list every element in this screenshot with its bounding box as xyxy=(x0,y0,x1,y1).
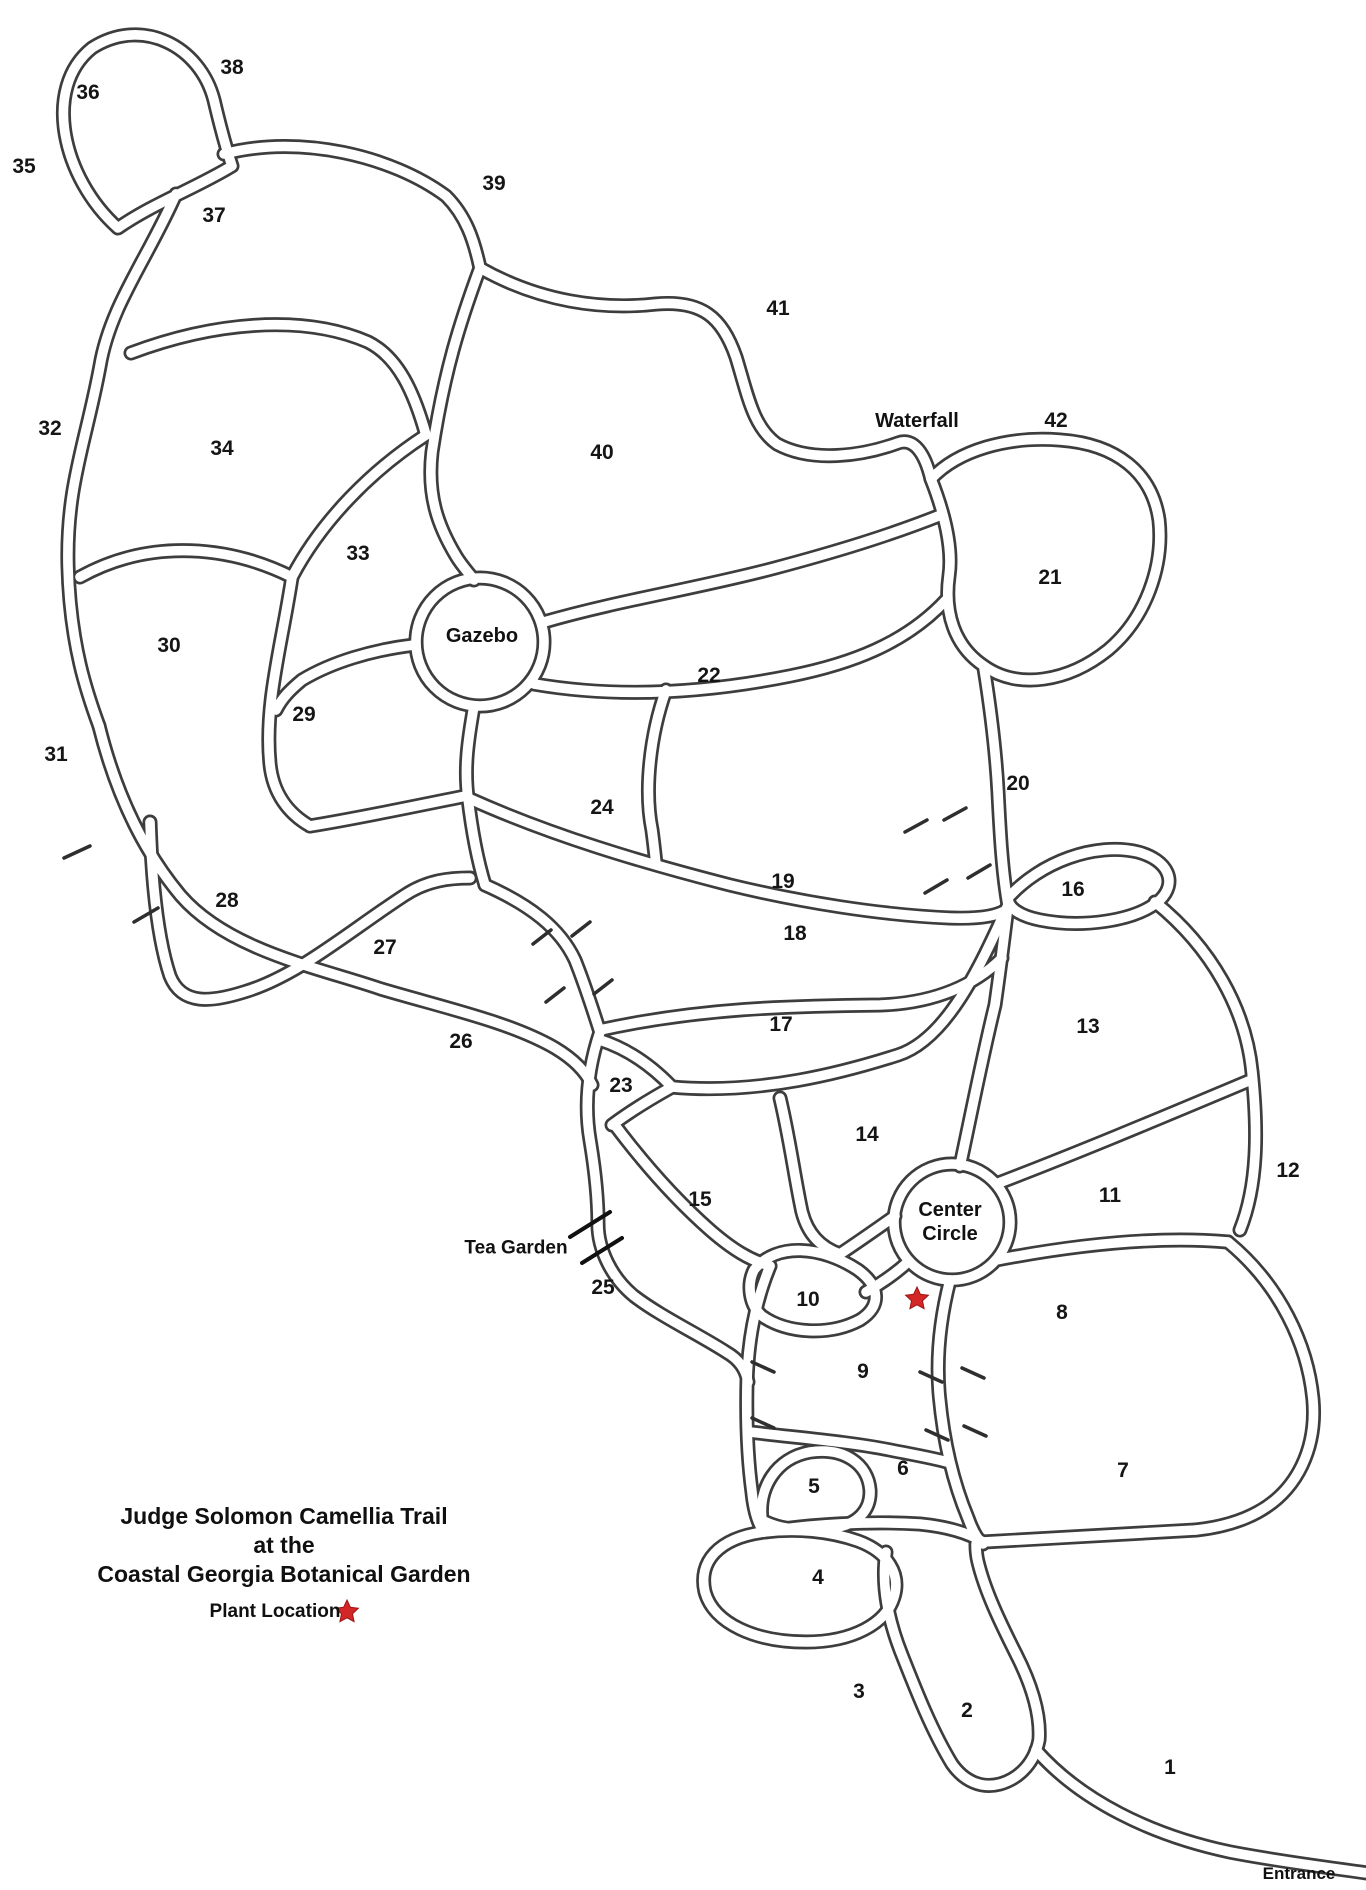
bed-label-19: 19 xyxy=(771,870,794,894)
place-label-gazebo: Gazebo xyxy=(446,624,518,648)
bed-label-1: 1 xyxy=(1164,1756,1176,1780)
bed-label-11: 11 xyxy=(1099,1184,1121,1208)
place-label-entrance: Entrance xyxy=(1263,1864,1336,1884)
map-title-line1: Judge Solomon Camellia Trail xyxy=(59,1502,509,1531)
place-label-waterfall: Waterfall xyxy=(875,409,959,433)
bed-label-25: 25 xyxy=(591,1276,614,1300)
map-title-line3: Coastal Georgia Botanical Garden xyxy=(59,1560,509,1589)
bed-label-38: 38 xyxy=(220,56,243,80)
bed-label-42: 42 xyxy=(1044,409,1067,433)
bed-label-30: 30 xyxy=(157,634,180,658)
bed-label-14: 14 xyxy=(855,1123,878,1147)
bed-label-20: 20 xyxy=(1006,772,1029,796)
bed-label-18: 18 xyxy=(783,922,806,946)
legend: Plant Location xyxy=(150,1601,400,1623)
bed-label-27: 27 xyxy=(373,936,396,960)
place-label-center-circle: Center Circle xyxy=(918,1198,981,1246)
bed-label-4: 4 xyxy=(812,1566,824,1590)
bed-label-29: 29 xyxy=(292,703,315,727)
bed-label-13: 13 xyxy=(1076,1015,1099,1039)
trail-map: 1234567891011121314151617181920212223242… xyxy=(0,0,1366,1890)
bed-label-23: 23 xyxy=(609,1074,632,1098)
bed-label-40: 40 xyxy=(590,441,613,465)
bed-label-5: 5 xyxy=(808,1475,820,1499)
bed-label-9: 9 xyxy=(857,1360,869,1384)
bed-label-37: 37 xyxy=(202,204,225,228)
bed-label-41: 41 xyxy=(766,297,789,321)
bed-label-26: 26 xyxy=(449,1030,472,1054)
place-label-tea-garden: Tea Garden xyxy=(464,1238,567,1261)
bed-label-2: 2 xyxy=(961,1699,973,1723)
bed-label-28: 28 xyxy=(215,889,238,913)
bed-label-35: 35 xyxy=(12,155,35,179)
bed-label-31: 31 xyxy=(44,743,67,767)
bed-label-8: 8 xyxy=(1056,1301,1068,1325)
bed-label-3: 3 xyxy=(853,1680,865,1704)
map-title-line2: at the xyxy=(59,1531,509,1560)
bed-label-39: 39 xyxy=(482,172,505,196)
bed-label-34: 34 xyxy=(210,437,233,461)
bed-label-6: 6 xyxy=(897,1457,909,1481)
bed-label-12: 12 xyxy=(1276,1159,1299,1183)
bed-label-21: 21 xyxy=(1038,566,1061,590)
bed-label-7: 7 xyxy=(1117,1459,1129,1483)
bed-label-24: 24 xyxy=(590,796,613,820)
bed-label-22: 22 xyxy=(697,664,720,688)
bed-label-10: 10 xyxy=(796,1288,819,1312)
legend-label: Plant Location xyxy=(210,1601,341,1622)
bed-label-33: 33 xyxy=(346,542,369,566)
bed-label-16: 16 xyxy=(1061,878,1084,902)
map-title: Judge Solomon Camellia Trail at the Coas… xyxy=(59,1502,509,1589)
bed-label-15: 15 xyxy=(688,1188,711,1212)
bed-label-17: 17 xyxy=(769,1013,792,1037)
bed-label-36: 36 xyxy=(76,81,99,105)
bed-label-32: 32 xyxy=(38,417,61,441)
